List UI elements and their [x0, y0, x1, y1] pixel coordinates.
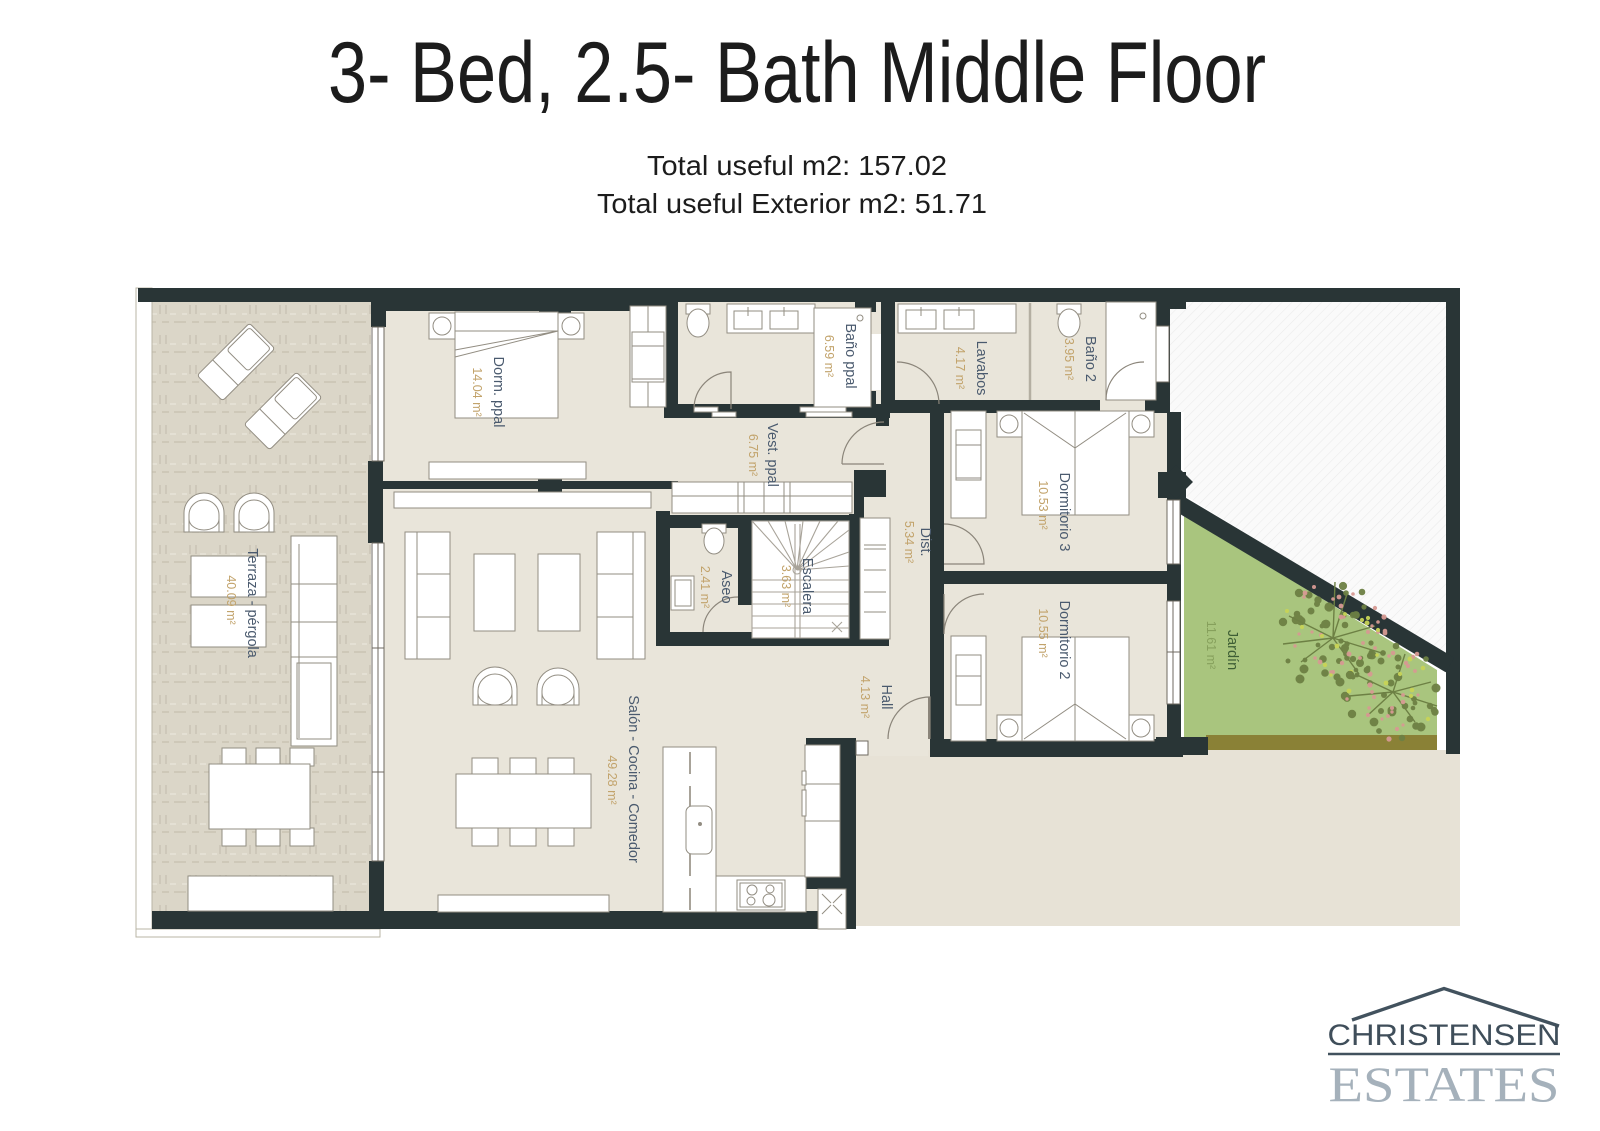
svg-text:Dist.: Dist. — [917, 528, 933, 557]
svg-text:3.95 m²: 3.95 m² — [1062, 338, 1076, 380]
svg-text:Vest. ppal: Vest. ppal — [764, 423, 780, 487]
svg-text:Terraza - pérgola: Terraza - pérgola — [244, 548, 260, 659]
svg-text:Total useful Exterior m2: 51.7: Total useful Exterior m2: 51.71 — [597, 188, 987, 219]
svg-text:14.04 m²: 14.04 m² — [470, 367, 484, 416]
svg-text:ESTATES: ESTATES — [1329, 1056, 1560, 1112]
svg-text:Dormitorio 2: Dormitorio 2 — [1056, 601, 1072, 680]
svg-text:Salón - Cocina - Comedor: Salón - Cocina - Comedor — [625, 695, 641, 863]
svg-text:Baño 2: Baño 2 — [1082, 336, 1098, 382]
svg-text:Escalera: Escalera — [799, 558, 815, 615]
svg-text:Jardín: Jardín — [1224, 630, 1240, 670]
svg-text:Aseo: Aseo — [718, 570, 734, 603]
svg-text:6.75 m²: 6.75 m² — [746, 434, 760, 476]
svg-text:49.28 m²: 49.28 m² — [605, 755, 619, 804]
svg-text:CHRISTENSEN: CHRISTENSEN — [1328, 1019, 1561, 1052]
svg-text:2.41 m²: 2.41 m² — [698, 566, 712, 608]
svg-text:4.17 m²: 4.17 m² — [953, 347, 967, 389]
svg-text:Hall: Hall — [878, 685, 894, 710]
svg-text:3.63 m²: 3.63 m² — [779, 565, 793, 607]
svg-text:Dorm. ppal: Dorm. ppal — [490, 357, 506, 428]
svg-text:Dormitorio 3: Dormitorio 3 — [1056, 473, 1072, 552]
svg-text:Lavabos: Lavabos — [973, 341, 989, 396]
svg-text:3- Bed, 2.5- Bath Middle Floor: 3- Bed, 2.5- Bath Middle Floor — [328, 25, 1266, 121]
svg-text:5.34 m²: 5.34 m² — [902, 521, 916, 563]
svg-text:40.09 m²: 40.09 m² — [224, 575, 238, 624]
svg-text:Total useful m2: 157.02: Total useful m2: 157.02 — [647, 150, 947, 181]
svg-text:6.59 m²: 6.59 m² — [822, 335, 836, 377]
svg-text:10.53 m²: 10.53 m² — [1036, 480, 1050, 529]
svg-text:10.55 m²: 10.55 m² — [1036, 608, 1050, 657]
svg-text:4.13 m²: 4.13 m² — [858, 676, 872, 718]
svg-text:Baño ppal: Baño ppal — [842, 323, 858, 388]
svg-text:11.61 m²: 11.61 m² — [1204, 621, 1218, 669]
